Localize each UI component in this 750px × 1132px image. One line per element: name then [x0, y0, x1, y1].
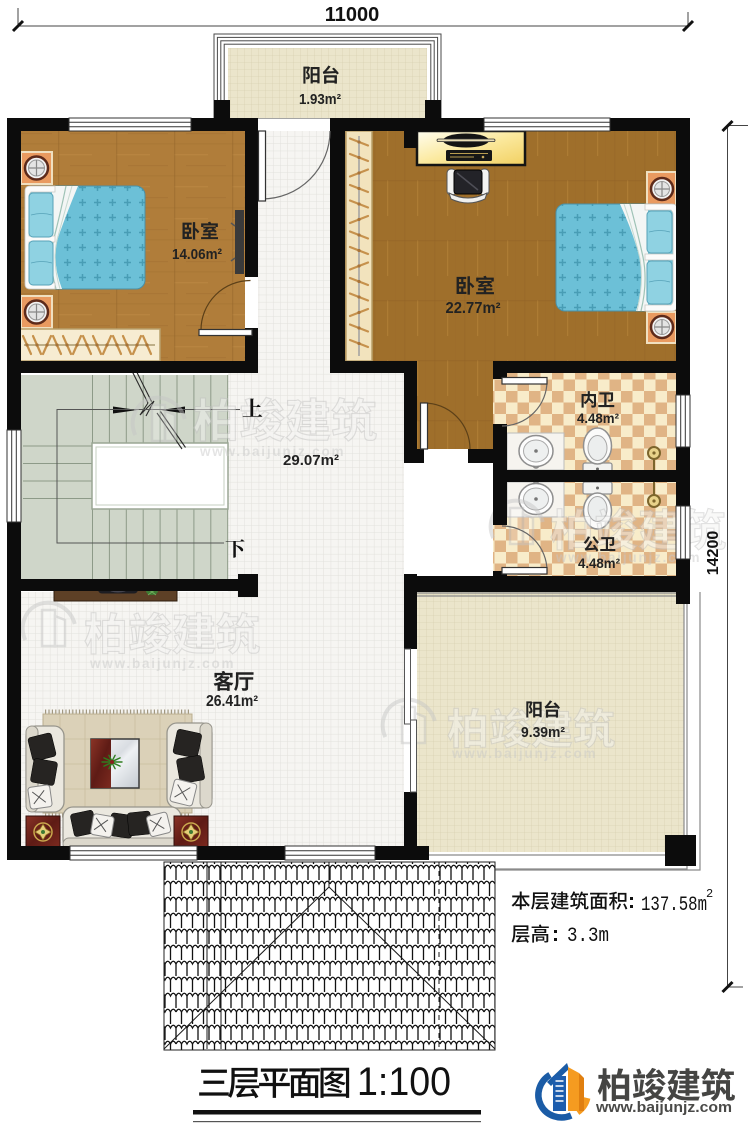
svg-text:26.41m²: 26.41m² — [206, 693, 258, 710]
svg-text:www.baijunjz.com: www.baijunjz.com — [451, 746, 597, 761]
svg-text:137.58m: 137.58m — [641, 894, 707, 917]
svg-text:4.48m²: 4.48m² — [577, 410, 619, 426]
svg-text:1.93m²: 1.93m² — [299, 92, 341, 108]
svg-text:9.39m²: 9.39m² — [521, 725, 565, 741]
svg-text:4.48m²: 4.48m² — [578, 555, 620, 571]
svg-text:22.77m²: 22.77m² — [446, 300, 501, 317]
svg-text:3.3m: 3.3m — [567, 925, 609, 948]
svg-text:11000: 11000 — [325, 4, 380, 26]
svg-text:www.baijunjz.com: www.baijunjz.com — [89, 656, 235, 671]
svg-text:29.07m²: 29.07m² — [283, 452, 339, 469]
svg-text:www.baijunjz.com: www.baijunjz.com — [595, 1100, 732, 1116]
svg-text:14200: 14200 — [705, 531, 722, 576]
svg-text:1:100: 1:100 — [357, 1060, 451, 1104]
svg-text:14.06m²: 14.06m² — [172, 246, 222, 263]
svg-text:2: 2 — [706, 887, 713, 901]
